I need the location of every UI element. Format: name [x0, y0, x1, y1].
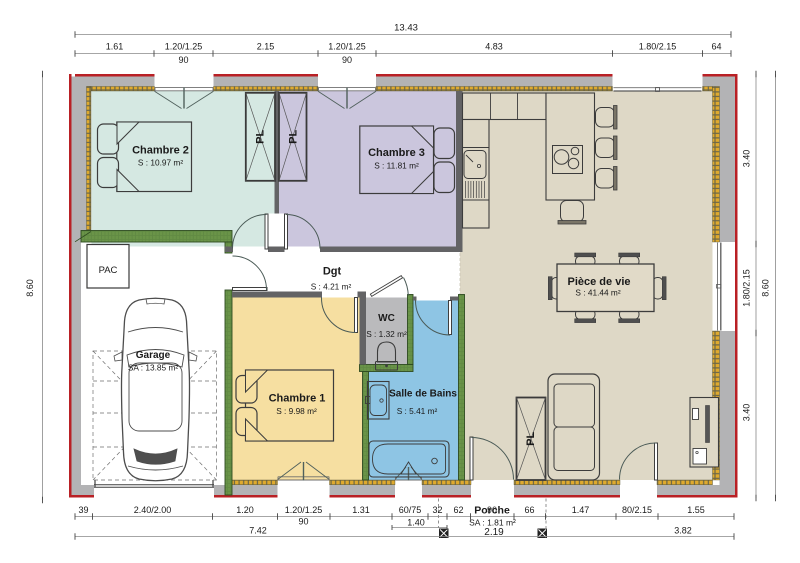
svg-text:64: 64	[711, 42, 721, 52]
svg-text:Garage: Garage	[136, 350, 171, 361]
svg-text:PL: PL	[288, 129, 300, 143]
svg-text:90: 90	[178, 55, 188, 65]
svg-text:PAC: PAC	[99, 265, 118, 276]
svg-text:Chambre 2: Chambre 2	[132, 145, 189, 157]
svg-text:8.60: 8.60	[761, 279, 771, 297]
svg-text:8.60: 8.60	[25, 279, 35, 297]
svg-text:1.40: 1.40	[407, 518, 425, 528]
svg-text:1.80/2.15: 1.80/2.15	[742, 269, 752, 307]
svg-text:Porche: Porche	[474, 505, 510, 517]
svg-text:3.40: 3.40	[742, 150, 752, 168]
svg-text:WC: WC	[378, 313, 395, 324]
svg-text:1.20/1.25: 1.20/1.25	[328, 42, 366, 52]
svg-text:Chambre 3: Chambre 3	[368, 147, 425, 159]
svg-text:Salle de Bains: Salle de Bains	[389, 389, 457, 400]
svg-text:S : 4.21 m²: S : 4.21 m²	[311, 282, 352, 292]
svg-text:PL: PL	[255, 129, 267, 143]
svg-text:Chambre 1: Chambre 1	[269, 393, 326, 405]
svg-text:1.31: 1.31	[352, 505, 370, 515]
svg-text:62: 62	[453, 505, 463, 515]
svg-text:SA : 1.81 m²: SA : 1.81 m²	[469, 518, 516, 528]
svg-text:S : 10.97 m²: S : 10.97 m²	[138, 158, 183, 168]
svg-text:S : 11.81 m²: S : 11.81 m²	[374, 161, 419, 171]
svg-text:S : 9.98 m²: S : 9.98 m²	[276, 406, 317, 416]
svg-text:1.47: 1.47	[572, 505, 590, 515]
svg-text:1.55: 1.55	[687, 505, 705, 515]
svg-text:39: 39	[78, 505, 88, 515]
svg-text:66: 66	[524, 505, 534, 515]
svg-text:1.80/2.15: 1.80/2.15	[639, 42, 677, 52]
svg-text:S : 1.32 m²: S : 1.32 m²	[366, 329, 407, 339]
svg-text:S : 41.44 m²: S : 41.44 m²	[575, 288, 620, 298]
svg-text:S : 5.41 m²: S : 5.41 m²	[397, 406, 438, 416]
svg-text:SA : 13.85 m²: SA : 13.85 m²	[128, 363, 179, 373]
svg-text:2.19: 2.19	[484, 527, 504, 538]
svg-text:1.20: 1.20	[236, 505, 254, 515]
svg-text:Dgt: Dgt	[323, 266, 342, 278]
svg-text:90: 90	[298, 517, 308, 527]
svg-text:1.20/1.25: 1.20/1.25	[165, 42, 203, 52]
svg-text:1.61: 1.61	[106, 42, 124, 52]
svg-text:2.40/2.00: 2.40/2.00	[134, 505, 172, 515]
svg-text:7.42: 7.42	[249, 526, 267, 536]
svg-text:3.40: 3.40	[742, 404, 752, 422]
svg-text:32: 32	[432, 505, 442, 515]
svg-text:80/2.15: 80/2.15	[622, 505, 652, 515]
svg-text:13.43: 13.43	[394, 23, 418, 34]
svg-text:Pièce de vie: Pièce de vie	[568, 276, 631, 288]
svg-text:3.82: 3.82	[674, 526, 692, 536]
svg-text:2.15: 2.15	[257, 42, 275, 52]
svg-text:1.20/1.25: 1.20/1.25	[285, 505, 323, 515]
svg-text:PL: PL	[525, 431, 537, 445]
svg-text:60/75: 60/75	[399, 505, 422, 515]
svg-text:90: 90	[342, 55, 352, 65]
svg-text:4.83: 4.83	[485, 42, 503, 52]
